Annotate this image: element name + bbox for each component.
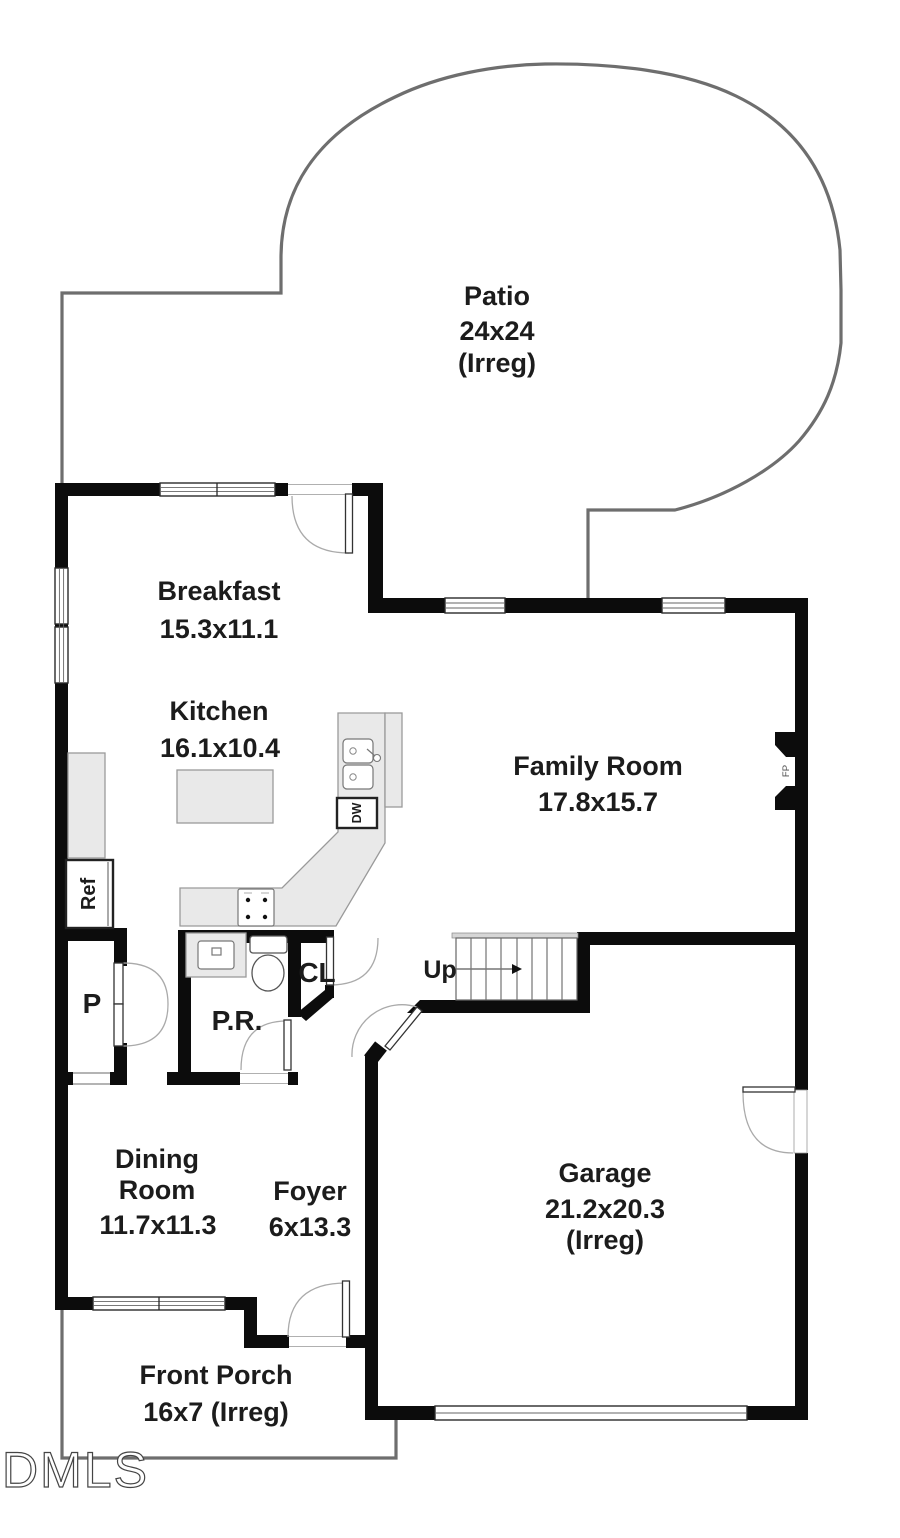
dining-room-dims: 11.7x11.3 <box>99 1210 216 1240</box>
refrigerator-label: Ref <box>78 878 100 911</box>
fireplace: FP <box>775 732 795 810</box>
family-room-dims: 17.8x15.7 <box>538 787 658 817</box>
foyer-dims: 6x13.3 <box>269 1212 352 1242</box>
garage-door <box>435 1406 747 1420</box>
kitchen-dims: 16.1x10.4 <box>160 733 280 763</box>
family-room-label: Family Room <box>513 751 683 781</box>
closet-label: CL <box>298 957 335 988</box>
breakfast-window <box>160 483 275 496</box>
garage-label: Garage <box>558 1158 651 1188</box>
dishwasher-label: DW <box>350 802 364 823</box>
floor-plan: FP <box>0 0 900 1538</box>
pantry-cased-opening <box>73 1073 110 1084</box>
dining-room-label-1: Dining <box>115 1144 199 1174</box>
front-door <box>288 1281 350 1347</box>
kitchen-label: Kitchen <box>169 696 268 726</box>
patio-note: (Irreg) <box>458 348 536 378</box>
dmls-watermark: DMLS <box>2 1442 149 1498</box>
stairs-up-label: Up <box>423 956 456 984</box>
pantry-label: P <box>83 988 102 1019</box>
pantry-double-doors <box>114 963 168 1046</box>
dining-room-label-2: Room <box>119 1175 196 1205</box>
powder-room-label: P.R. <box>212 1005 263 1036</box>
breakfast-patio-door <box>288 485 353 554</box>
kitchen-island <box>177 770 273 823</box>
patio-outline <box>62 64 841 598</box>
dining-window <box>93 1297 225 1310</box>
toilet <box>250 936 287 991</box>
dishwasher: DW <box>337 798 377 828</box>
breakfast-label: Breakfast <box>157 576 280 606</box>
room-labels: Patio 24x24 (Irreg) Breakfast 15.3x11.1 … <box>83 281 683 1427</box>
patio-label: Patio <box>464 281 530 311</box>
garage-side-door <box>743 1087 807 1153</box>
garage-note: (Irreg) <box>566 1225 644 1255</box>
foyer-label: Foyer <box>273 1176 347 1206</box>
patio-dims: 24x24 <box>459 316 534 346</box>
breakfast-dims: 15.3x11.1 <box>160 614 279 644</box>
kitchen-back-counter <box>385 713 402 807</box>
cooktop <box>238 889 274 926</box>
front-porch-label: Front Porch <box>140 1360 293 1390</box>
refrigerator: Ref <box>66 860 113 928</box>
front-porch-dims: 16x7 (Irreg) <box>143 1397 289 1427</box>
kitchen-left-counter <box>68 753 105 858</box>
powder-room-fixtures <box>186 933 287 991</box>
garage-dims: 21.2x20.3 <box>545 1194 665 1224</box>
stairs <box>452 933 578 1000</box>
fireplace-label: FP <box>781 765 792 777</box>
floor-plan-drawing: FP <box>0 0 900 1538</box>
